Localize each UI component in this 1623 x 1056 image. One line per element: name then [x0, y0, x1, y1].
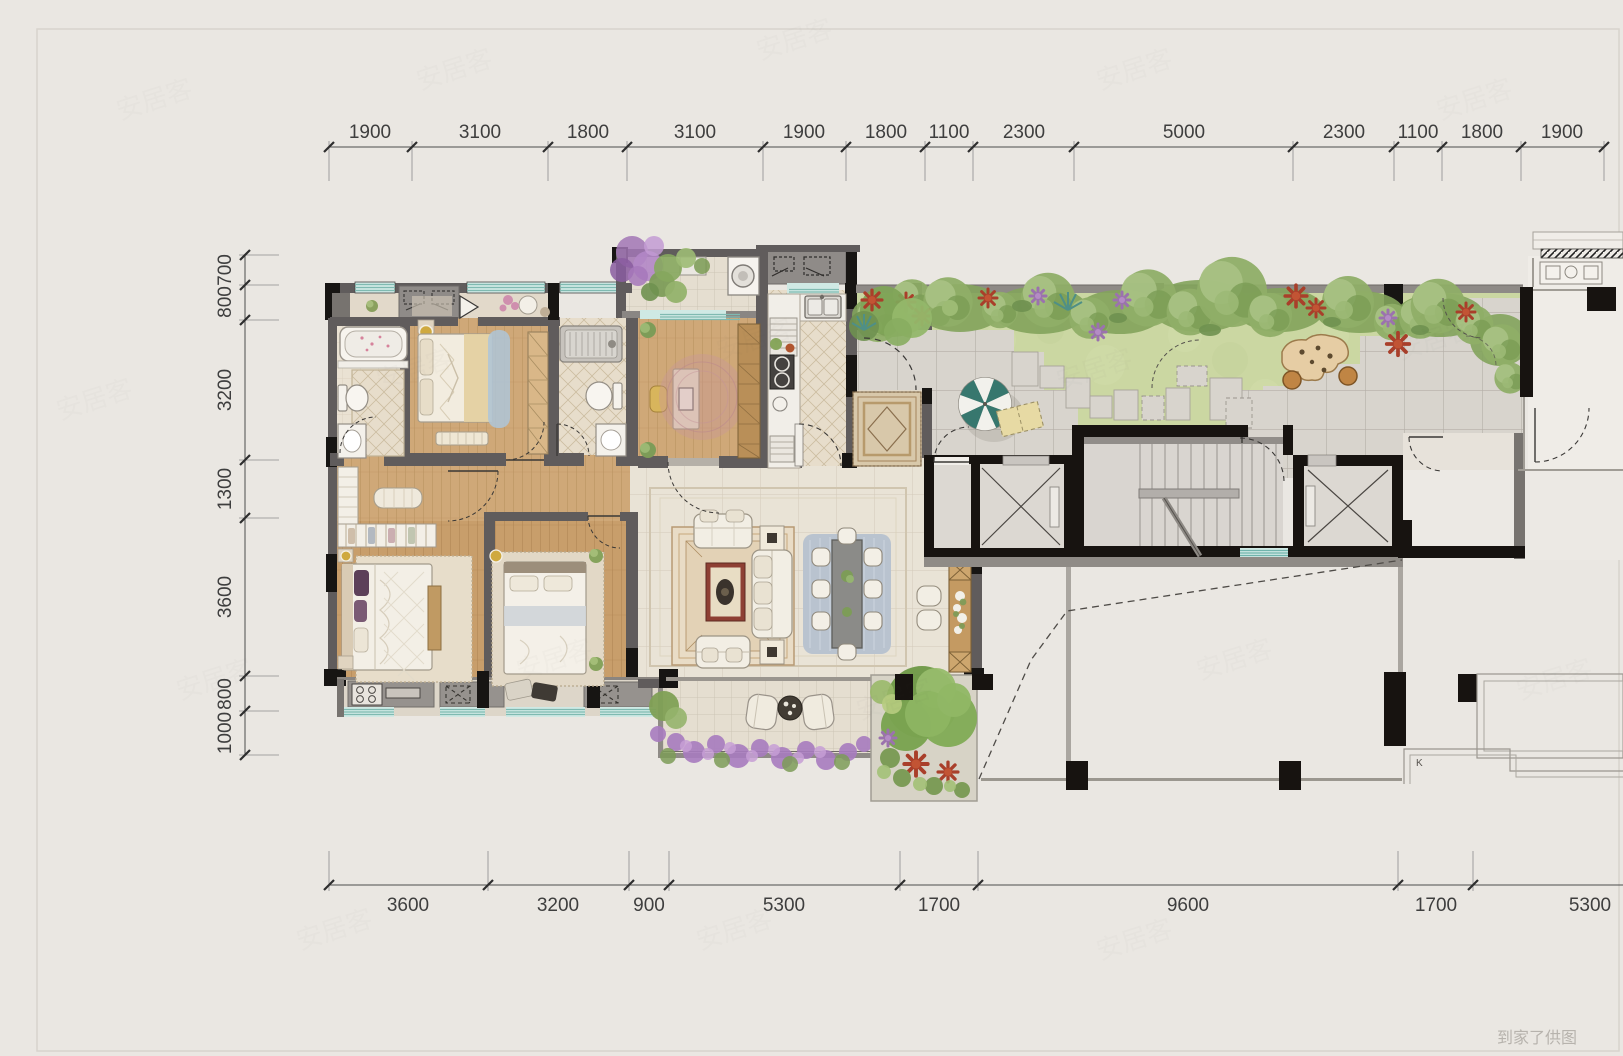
svg-text:1800: 1800 — [865, 122, 907, 143]
svg-text:到家了供图: 到家了供图 — [1497, 1029, 1577, 1047]
svg-text:1700: 1700 — [1415, 895, 1457, 916]
svg-text:1100: 1100 — [1398, 122, 1439, 143]
svg-text:K: K — [1416, 758, 1423, 769]
svg-text:3600: 3600 — [387, 895, 429, 916]
svg-text:3100: 3100 — [459, 122, 501, 143]
svg-text:1000: 1000 — [215, 712, 236, 754]
svg-text:900: 900 — [633, 895, 665, 916]
svg-text:3200: 3200 — [537, 895, 579, 916]
svg-text:3600: 3600 — [215, 576, 236, 618]
svg-text:700: 700 — [215, 254, 236, 286]
svg-text:5000: 5000 — [1163, 122, 1205, 143]
svg-text:3100: 3100 — [674, 122, 716, 143]
svg-text:1700: 1700 — [918, 895, 960, 916]
svg-text:1100: 1100 — [929, 122, 970, 143]
svg-text:9600: 9600 — [1167, 895, 1209, 916]
svg-text:800: 800 — [215, 286, 236, 318]
svg-text:1900: 1900 — [1541, 122, 1583, 143]
svg-text:1900: 1900 — [349, 122, 391, 143]
svg-text:1800: 1800 — [1461, 122, 1503, 143]
svg-text:3200: 3200 — [215, 369, 236, 411]
svg-text:2300: 2300 — [1323, 122, 1365, 143]
svg-text:1900: 1900 — [783, 122, 825, 143]
svg-text:1800: 1800 — [567, 122, 609, 143]
svg-text:5300: 5300 — [1569, 895, 1611, 916]
svg-text:1300: 1300 — [215, 468, 236, 510]
svg-text:2300: 2300 — [1003, 122, 1045, 143]
